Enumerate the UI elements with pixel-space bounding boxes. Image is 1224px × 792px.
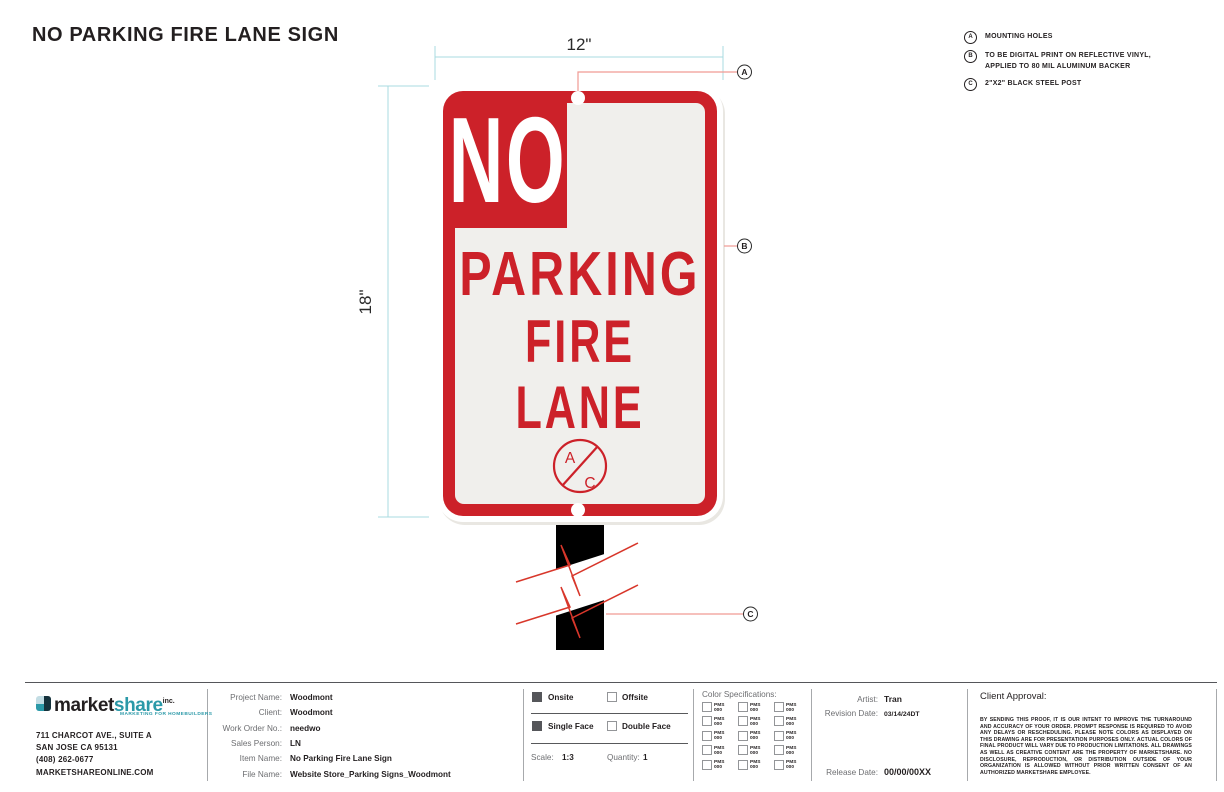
revision-date-label: Revision Date: [815, 709, 878, 718]
pms-checkbox[interactable] [702, 716, 712, 726]
project-field-row: Client:Woodmont [215, 705, 451, 720]
pms-code: PMS000 [750, 731, 760, 741]
height-dimension-label: 18" [356, 290, 375, 315]
footer-divider [693, 689, 694, 781]
field-label: Work Order No.: [215, 724, 282, 733]
sign-panel: NO PARKING FIRE LANE A C [437, 85, 725, 525]
footer-divider [207, 689, 208, 781]
pms-checkbox[interactable] [774, 731, 784, 741]
release-date-label: Release Date: [815, 768, 878, 777]
pms-code: PMS000 [714, 746, 724, 756]
pms-swatch: PMS000 [702, 731, 738, 745]
pms-swatch: PMS000 [774, 760, 810, 774]
footer-divider [967, 689, 968, 781]
quantity-value: 1 [643, 753, 648, 762]
field-label: Project Name: [215, 693, 282, 702]
field-value: needwo [290, 724, 320, 733]
quantity-label: Quantity: [607, 753, 640, 762]
field-value: Woodmont [290, 708, 333, 717]
project-field-row: Sales Person:LN [215, 736, 451, 751]
callout-markers: A B C [738, 65, 758, 621]
pms-swatch: PMS000 [774, 702, 810, 716]
options-divider [531, 743, 688, 744]
address-line-1: 711 CHARCOT AVE., SUITE A [36, 730, 154, 742]
field-label: File Name: [215, 770, 282, 779]
proof-sheet-page: NO PARKING FIRE LANE SIGN AMOUNTING HOLE… [0, 0, 1224, 792]
project-field-row: Project Name:Woodmont [215, 690, 451, 705]
pms-code: PMS000 [750, 760, 760, 770]
pms-swatch: PMS000 [738, 702, 774, 716]
badge-letter-a: A [565, 450, 576, 467]
pms-grid: PMS000PMS000PMS000PMS000PMS000PMS000PMS0… [702, 702, 810, 774]
field-value: Woodmont [290, 693, 333, 702]
pms-code: PMS000 [714, 731, 724, 741]
pms-swatch: PMS000 [738, 745, 774, 759]
width-dimension-label: 12" [567, 35, 592, 54]
field-label: Item Name: [215, 754, 282, 763]
address-line-2: SAN JOSE CA 95131 [36, 742, 154, 754]
sign-word-lane: LANE [515, 375, 644, 442]
onsite-checkbox[interactable] [532, 692, 542, 702]
pms-swatch: PMS000 [702, 760, 738, 774]
pms-code: PMS000 [786, 760, 796, 770]
pms-checkbox[interactable] [774, 760, 784, 770]
footer-divider [811, 689, 812, 781]
project-field-row: Work Order No.:needwo [215, 721, 451, 736]
badge-letter-c: C [584, 475, 595, 492]
revision-date-value: 03/14/24DT [884, 711, 920, 718]
mounting-hole-top [571, 91, 585, 105]
pms-swatch: PMS000 [738, 760, 774, 774]
company-phone: (408) 262-0677 [36, 754, 154, 766]
pms-code: PMS000 [750, 746, 760, 756]
sign-drawing: 12" 18" NO PARKING FIRE L [0, 0, 1224, 680]
footer-divider [523, 689, 524, 781]
field-value: LN [290, 739, 301, 748]
pms-code: PMS000 [786, 717, 796, 727]
artist-label: Artist: [815, 695, 878, 704]
pms-code: PMS000 [714, 717, 724, 727]
options-divider [531, 713, 688, 714]
color-specs-title: Color Specifications: [702, 690, 777, 699]
pms-code: PMS000 [714, 703, 724, 713]
callout-marker-a: A [741, 67, 747, 77]
pms-swatch: PMS000 [702, 702, 738, 716]
pms-swatch: PMS000 [774, 745, 810, 759]
marketshare-logo-icon [36, 696, 51, 711]
release-date-value: 00/00/00XX [884, 767, 931, 777]
pms-swatch: PMS000 [702, 745, 738, 759]
pms-checkbox[interactable] [738, 745, 748, 755]
mounting-hole-bottom [571, 503, 585, 517]
pms-checkbox[interactable] [738, 702, 748, 712]
pms-checkbox[interactable] [738, 731, 748, 741]
callout-marker-b: B [741, 241, 747, 251]
project-fields: Project Name:WoodmontClient:WoodmontWork… [215, 690, 451, 782]
pms-checkbox[interactable] [738, 760, 748, 770]
footer-top-rule [25, 682, 1217, 683]
pms-swatch: PMS000 [702, 716, 738, 730]
footer-divider [1216, 689, 1217, 781]
steel-post [505, 516, 648, 650]
pms-code: PMS000 [786, 703, 796, 713]
project-field-row: Item Name:No Parking Fire Lane Sign [215, 751, 451, 766]
approval-disclaimer: BY SENDING THIS PROOF, IT IS OUR INTENT … [980, 717, 1192, 776]
single-face-label: Single Face [548, 722, 594, 731]
pms-checkbox[interactable] [702, 731, 712, 741]
pms-code: PMS000 [750, 703, 760, 713]
sign-word-parking: PARKING [459, 239, 700, 308]
project-field-row: File Name:Website Store_Parking Signs_Wo… [215, 766, 451, 781]
offsite-checkbox[interactable] [607, 692, 617, 702]
company-address: 711 CHARCOT AVE., SUITE A SAN JOSE CA 95… [36, 730, 154, 779]
single-face-checkbox[interactable] [532, 721, 542, 731]
company-website: MARKETSHAREONLINE.COM [36, 767, 154, 779]
pms-code: PMS000 [750, 717, 760, 727]
pms-checkbox[interactable] [774, 702, 784, 712]
callout-marker-c: C [747, 609, 753, 619]
client-approval-title: Client Approval: [980, 691, 1047, 702]
pms-swatch: PMS000 [738, 716, 774, 730]
pms-code: PMS000 [786, 731, 796, 741]
artist-value: Tran [884, 694, 902, 704]
double-face-checkbox[interactable] [607, 721, 617, 731]
scale-label: Scale: [531, 753, 554, 762]
scale-value: 1:3 [562, 753, 574, 762]
pms-code: PMS000 [714, 760, 724, 770]
onsite-label: Onsite [548, 693, 573, 702]
pms-checkbox[interactable] [702, 760, 712, 770]
pms-swatch: PMS000 [774, 731, 810, 745]
pms-checkbox[interactable] [702, 702, 712, 712]
offsite-label: Offsite [622, 693, 648, 702]
sign-word-no: NO [449, 91, 567, 228]
pms-checkbox[interactable] [774, 716, 784, 726]
pms-swatch: PMS000 [774, 716, 810, 730]
pms-checkbox[interactable] [774, 745, 784, 755]
double-face-label: Double Face [622, 722, 671, 731]
sign-word-fire: FIRE [525, 309, 635, 376]
field-value: Website Store_Parking Signs_Woodmont [290, 770, 451, 779]
pms-code: PMS000 [786, 746, 796, 756]
pms-checkbox[interactable] [702, 745, 712, 755]
credits-block: Artist: Tran Revision Date: 03/14/24DT R… [815, 694, 965, 777]
field-label: Client: [215, 708, 282, 717]
field-value: No Parking Fire Lane Sign [290, 754, 392, 763]
logo-tagline: MARKETING FOR HOMEBUILDERS [120, 712, 212, 717]
field-label: Sales Person: [215, 739, 282, 748]
pms-swatch: PMS000 [738, 731, 774, 745]
pms-checkbox[interactable] [738, 716, 748, 726]
